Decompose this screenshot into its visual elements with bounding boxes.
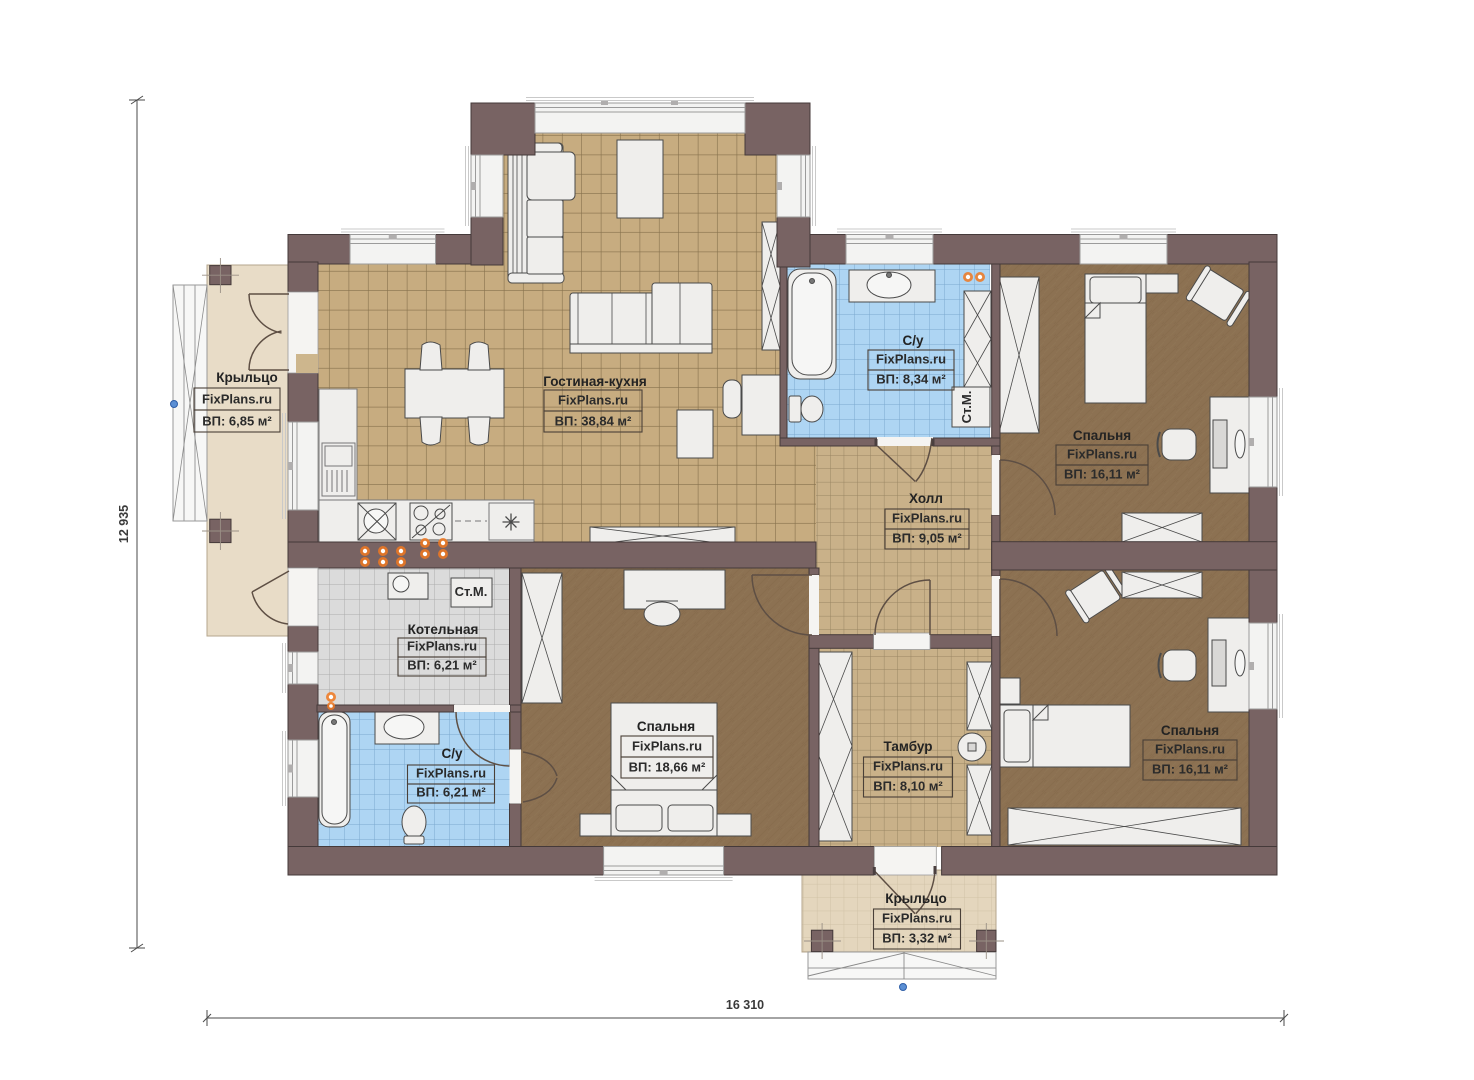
svg-text:12 935: 12 935: [117, 505, 131, 543]
svg-text:ВП: 6,21 м²: ВП: 6,21 м²: [407, 658, 477, 673]
svg-text:FixPlans.ru: FixPlans.ru: [1067, 447, 1137, 462]
svg-text:FixPlans.ru: FixPlans.ru: [876, 352, 946, 367]
svg-text:FixPlans.ru: FixPlans.ru: [882, 911, 952, 926]
svg-text:ВП: 3,32 м²: ВП: 3,32 м²: [882, 931, 952, 946]
svg-text:Спальня: Спальня: [1073, 428, 1131, 443]
svg-text:Спальня: Спальня: [1161, 723, 1219, 738]
svg-text:Гостиная-кухня: Гостиная-кухня: [543, 374, 646, 389]
svg-text:С/у: С/у: [902, 333, 924, 348]
svg-text:Спальня: Спальня: [637, 719, 695, 734]
svg-text:С/у: С/у: [441, 746, 463, 761]
svg-text:ВП: 6,85 м²: ВП: 6,85 м²: [202, 414, 272, 429]
svg-text:Холл: Холл: [909, 491, 943, 506]
svg-text:FixPlans.ru: FixPlans.ru: [407, 639, 477, 654]
svg-text:FixPlans.ru: FixPlans.ru: [202, 392, 272, 407]
svg-text:Крыльцо: Крыльцо: [216, 370, 277, 385]
svg-text:ВП: 38,84 м²: ВП: 38,84 м²: [555, 414, 632, 429]
svg-text:FixPlans.ru: FixPlans.ru: [873, 759, 943, 774]
svg-text:Ст.М.: Ст.М.: [455, 584, 488, 599]
svg-text:Крыльцо: Крыльцо: [885, 891, 946, 906]
svg-text:ВП: 6,21 м²: ВП: 6,21 м²: [416, 785, 486, 800]
svg-text:ВП: 9,05 м²: ВП: 9,05 м²: [892, 531, 962, 546]
svg-text:Тамбур: Тамбур: [884, 739, 933, 754]
svg-text:ВП: 8,34 м²: ВП: 8,34 м²: [876, 372, 946, 387]
svg-text:FixPlans.ru: FixPlans.ru: [558, 393, 628, 408]
svg-text:Котельная: Котельная: [408, 622, 479, 637]
svg-text:ВП: 16,11 м²: ВП: 16,11 м²: [1064, 467, 1141, 482]
svg-text:FixPlans.ru: FixPlans.ru: [1155, 742, 1225, 757]
svg-text:FixPlans.ru: FixPlans.ru: [416, 766, 486, 781]
svg-text:FixPlans.ru: FixPlans.ru: [632, 739, 702, 754]
svg-text:ВП: 18,66 м²: ВП: 18,66 м²: [629, 760, 706, 775]
svg-text:FixPlans.ru: FixPlans.ru: [892, 511, 962, 526]
svg-text:ВП: 16,11 м²: ВП: 16,11 м²: [1152, 762, 1229, 777]
svg-text:ВП: 8,10 м²: ВП: 8,10 м²: [873, 779, 943, 794]
svg-text:Ст.М.: Ст.М.: [959, 391, 974, 424]
svg-text:16 310: 16 310: [726, 998, 764, 1012]
